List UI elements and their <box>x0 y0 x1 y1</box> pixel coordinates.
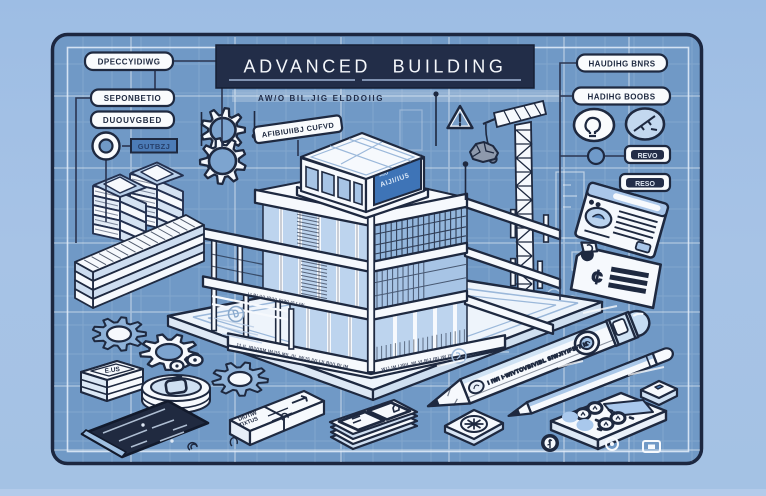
svg-text:RESO: RESO <box>635 181 655 188</box>
svg-text:GUTBZJ: GUTBZJ <box>138 142 170 151</box>
svg-text:AW/O BIL.JIG ELDDOIIG: AW/O BIL.JIG ELDDOIIG <box>258 94 384 103</box>
svg-text:ADVANCED BUILDING: ADVANCED BUILDING <box>244 57 507 77</box>
svg-text:DPECCYIDIWG: DPECCYIDIWG <box>98 58 161 67</box>
svg-text:REVO: REVO <box>638 153 658 160</box>
svg-text:DUOUVGBED: DUOUVGBED <box>103 116 162 125</box>
svg-text:SEPONBETIO: SEPONBETIO <box>104 94 161 103</box>
svg-text:HAUDIHG BNRS: HAUDIHG BNRS <box>588 60 655 69</box>
svg-text:HADIHG BOOBS: HADIHG BOOBS <box>588 93 656 102</box>
